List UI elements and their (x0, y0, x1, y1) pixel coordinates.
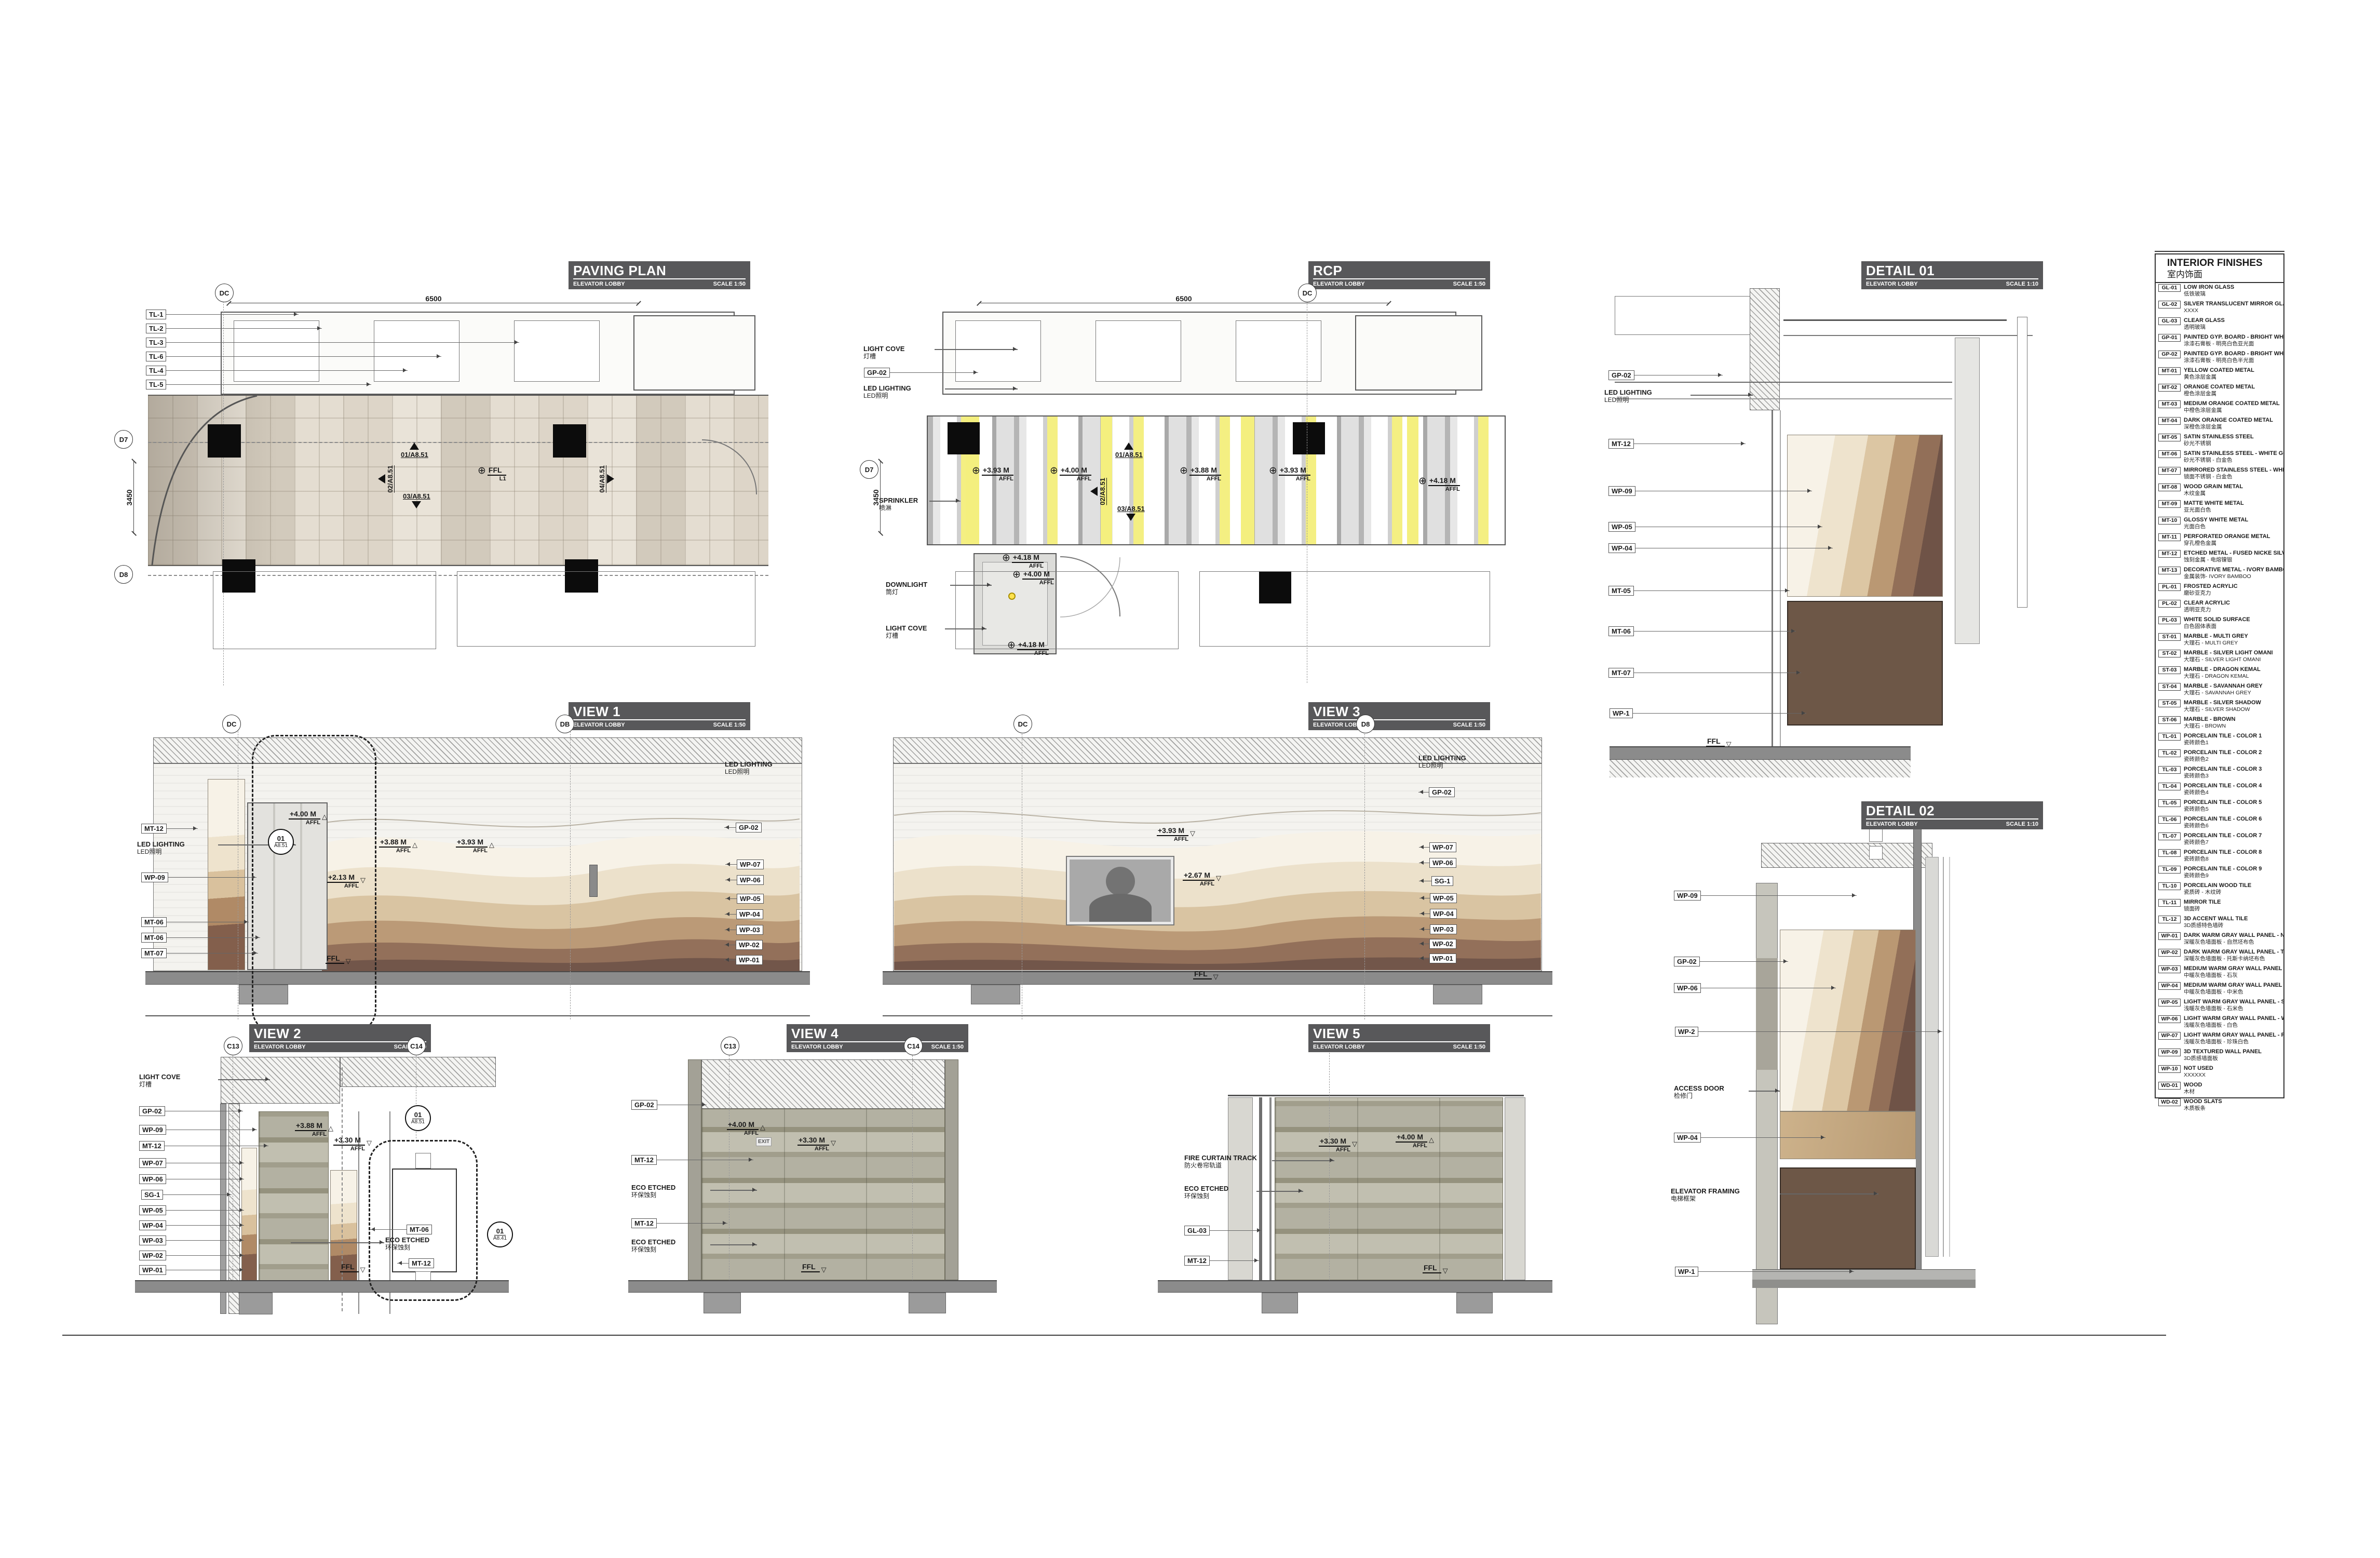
layered-wall-waves (894, 795, 1541, 970)
view5-drawing (1158, 1046, 1552, 1337)
finish-desc-cn: 瓷砖颜色7 (2184, 839, 2262, 846)
finish-desc-cn: 瓷砖颜色5 (2184, 806, 2262, 813)
legend-row: TL-11 MIRROR TILE 镜面砖 (2156, 898, 2283, 915)
finish-desc-en: CLEAR GLASS (2184, 317, 2225, 324)
finish-code: WD-01 (2158, 1082, 2181, 1090)
finish-desc-en: NOT USED (2184, 1065, 2213, 1072)
finish-desc-en: WHITE SOLID SURFACE (2184, 616, 2250, 623)
finish-desc-cn: 低铁玻璃 (2184, 291, 2234, 298)
finish-desc-en: MARBLE - BROWN (2184, 716, 2236, 723)
finish-desc: ETCHED METAL - FUSED NICKE SILVER SATIN … (2184, 549, 2281, 563)
finish-code: WP-05 (2158, 999, 2181, 1006)
finish-desc: YELLOW COATED METAL 黄色涂层金属 (2184, 367, 2254, 381)
finish-code: GL-01 (2158, 284, 2181, 292)
finish-code: MT-13 (2158, 567, 2181, 574)
return-panel (1925, 857, 1939, 1257)
finish-desc-cn: 透明亚克力 (2184, 607, 2230, 613)
panel-title: PAVING PLAN (573, 263, 746, 279)
finish-layer-wedge (241, 1148, 257, 1288)
finish-desc: MEDIUM WARM GRAY WALL PANEL - MID BEIGE … (2184, 982, 2281, 996)
legend-rows: GL-01 LOW IRON GLASS 低铁玻璃 GL-02 SILVER T… (2156, 283, 2283, 1114)
finish-code: MT-08 (2158, 483, 2181, 491)
finish-desc: MARBLE - DRAGON KEMAL 大理石 - DRAGON KEMAL (2184, 666, 2261, 680)
finish-desc-en: MATTE WHITE METAL (2184, 500, 2244, 507)
finish-desc: PORCELAIN TILE - COLOR 7 瓷砖颜色7 (2184, 832, 2262, 846)
glass-mullion (1259, 1097, 1262, 1280)
finish-desc: DARK WARM GRAY WALL PANEL - NATURAL GRIE… (2184, 932, 2281, 946)
slab-support (704, 1293, 741, 1313)
ceiling-hatch (153, 737, 802, 763)
slab-support (909, 1293, 946, 1313)
finish-code: GP-02 (2158, 351, 2181, 358)
finish-desc-cn: 涂漆石膏板 - 明亮白色半光面 (2184, 357, 2281, 364)
finish-desc: 3D TEXTURED WALL PANEL 3D质感墙面板 (2184, 1048, 2262, 1062)
finish-code: WD-02 (2158, 1098, 2181, 1106)
finish-desc-en: DARK WARM GRAY WALL PANEL - NATURAL GRIE… (2184, 932, 2281, 939)
portrait-artwork (1067, 857, 1173, 924)
finish-desc: WOOD GRAIN METAL 木纹金属 (2184, 483, 2243, 497)
access-door-dark-seg (1756, 958, 1778, 1070)
finish-code: TL-11 (2158, 899, 2181, 907)
finish-desc: MEDIUM WARM GRAY WALL PANEL - STONE GRAY… (2184, 965, 2281, 979)
striped-ceiling (927, 415, 1506, 545)
finish-desc-en: PORCELAIN TILE - COLOR 6 (2184, 815, 2262, 823)
panel-titlebar: DETAIL 01 ELEVATOR LOBBY SCALE 1:10 (1861, 261, 2043, 289)
lower-rooms (1199, 571, 1490, 647)
finish-desc: WOOD SLATS 木质板条 (2184, 1098, 2222, 1112)
legend-row: MT-04 DARK ORANGE COATED METAL 深橙色涂层金属 (2156, 416, 2283, 433)
panel-scale: SCALE 1:10 (2006, 821, 2038, 827)
legend-row: GP-02 PAINTED GYP. BOARD - BRIGHT WHITE … (2156, 350, 2283, 366)
legend-row: PL-03 WHITE SOLID SURFACE 白色固体表面 (2156, 615, 2283, 632)
finish-layer-wedge (330, 1170, 357, 1282)
side-room (1355, 315, 1482, 391)
portrait-shoulders (1089, 894, 1152, 922)
finish-desc-en: ORANGE COATED METAL (2184, 383, 2255, 391)
finish-code: TL-01 (2158, 733, 2181, 741)
ceiling-hatch (221, 1057, 340, 1104)
far-wall (2017, 317, 2027, 608)
finish-layer-wedge (208, 779, 245, 970)
layered-wall-waves (322, 808, 800, 971)
finish-desc-en: PORCELAIN WOOD TILE (2184, 882, 2251, 889)
legend-row: TL-02 PORCELAIN TILE - COLOR 2 瓷砖颜色2 (2156, 748, 2283, 765)
legend-row: WP-01 DARK WARM GRAY WALL PANEL - NATURA… (2156, 931, 2283, 948)
finish-desc: PERFORATED ORANGE METAL 穿孔橙色金属 (2184, 533, 2270, 547)
panel-subtitle-row: ELEVATOR LOBBY SCALE 1:50 (1313, 279, 1485, 287)
access-door-column (1756, 883, 1778, 1324)
legend-row: TL-03 PORCELAIN TILE - COLOR 3 瓷砖颜色3 (2156, 765, 2283, 782)
finish-desc: PORCELAIN TILE - COLOR 4 瓷砖颜色4 (2184, 782, 2262, 796)
finish-desc-en: DECORATIVE METAL - IVORY BAMBOO (2184, 566, 2281, 573)
paving-plan-drawing (140, 288, 779, 704)
finish-desc-en: PORCELAIN TILE - COLOR 5 (2184, 799, 2262, 806)
view3-drawing (883, 724, 1552, 1031)
finish-desc: LOW IRON GLASS 低铁玻璃 (2184, 284, 2234, 298)
view1-drawing (145, 724, 810, 1031)
finish-desc-en: CLEAR ACRYLIC (2184, 599, 2230, 607)
legend-row: TL-10 PORCELAIN WOOD TILE 瓷质砖 - 木纹砖 (2156, 881, 2283, 898)
finish-desc-cn: 镜面不锈钢 - 白金色 (2184, 474, 2281, 480)
finish-code: TL-05 (2158, 799, 2181, 807)
panel-subtitle: ELEVATOR LOBBY (573, 281, 625, 287)
finish-desc-cn: 光面白色 (2184, 523, 2248, 530)
legend-row: MT-05 SATIN STAINLESS STEEL 砂光不锈钢 (2156, 433, 2283, 449)
side-room (633, 315, 755, 391)
grid-centerline (729, 1047, 729, 1280)
legend-row: ST-04 MARBLE - SAVANNAH GREY 大理石 - SAVAN… (2156, 682, 2283, 699)
yellow-ceiling-stripe (1101, 417, 1112, 544)
finish-desc-cn: 橙色涂层金属 (2184, 391, 2255, 397)
finish-desc: PORCELAIN TILE - COLOR 3 瓷砖颜色3 (2184, 765, 2262, 780)
finish-desc: WHITE SOLID SURFACE 白色固体表面 (2184, 616, 2250, 630)
soffit-line (1615, 382, 1952, 383)
finish-desc-en: SILVER TRANSLUCENT MIRROR GLASS (2184, 300, 2281, 307)
finish-desc-en: SATIN STAINLESS STEEL (2184, 433, 2254, 440)
finish-code: PL-02 (2158, 600, 2181, 608)
finish-desc-en: WOOD SLATS (2184, 1098, 2222, 1105)
dimension: 3450 (126, 461, 134, 534)
interior-finishes-legend: INTERIOR FINISHES 室内饰面 GL-01 LOW IRON GL… (2155, 253, 2284, 1098)
finish-code: MT-01 (2158, 367, 2181, 375)
finish-code: MT-07 (2158, 467, 2181, 475)
grid-bubble: D7 (114, 430, 133, 449)
legend-row: ST-06 MARBLE - BROWN 大理石 - BROWN (2156, 715, 2283, 732)
finish-desc-cn: 浅暖灰色墙面板 - 石米色 (2184, 1005, 2281, 1012)
legend-row: WP-02 DARK WARM GRAY WALL PANEL - TOSCAN… (2156, 948, 2283, 964)
dimension-line (133, 461, 134, 534)
finish-desc-cn: 瓷砖颜色1 (2184, 740, 2262, 746)
finish-desc-cn: 大理石 - SILVER SHADOW (2184, 706, 2261, 713)
finish-desc-en: MEDIUM WARM GRAY WALL PANEL - MID BEIGE (2184, 982, 2281, 989)
panel-scale: SCALE 1:50 (713, 281, 746, 287)
finish-desc-cn: 3D质感特色墙砖 (2184, 922, 2248, 929)
finish-desc-cn: 瓷质砖 - 木纹砖 (2184, 889, 2251, 896)
baseline (145, 1015, 810, 1016)
dimension-value: 3450 (126, 489, 133, 505)
finish-desc: SATIN STAINLESS STEEL - WHITE GOLD 砂光不锈钢… (2184, 450, 2281, 464)
finish-code: TL-12 (2158, 916, 2181, 923)
finish-code: MT-12 (2158, 550, 2181, 558)
finish-desc: DARK WARM GRAY WALL PANEL - TOSCANA GRIE… (2184, 948, 2281, 962)
finish-code: WP-09 (2158, 1049, 2181, 1056)
legend-row: TL-01 PORCELAIN TILE - COLOR 1 瓷砖颜色1 (2156, 732, 2283, 748)
legend-row: TL-08 PORCELAIN TILE - COLOR 8 瓷砖颜色8 (2156, 848, 2283, 865)
drawing-sheet: INTERIOR FINISHES 室内饰面 GL-01 LOW IRON GL… (0, 0, 2380, 1558)
legend-row: ST-01 MARBLE - MULTI GREY 大理石 - MULTI GR… (2156, 632, 2283, 649)
lower-corridor (955, 571, 1179, 649)
finish-code: TL-10 (2158, 882, 2181, 890)
detail-scope-bubble (369, 1140, 478, 1301)
glass-mullion (1269, 1097, 1272, 1280)
yellow-ceiling-stripe (1407, 417, 1418, 544)
finish-desc-en: SATIN STAINLESS STEEL - WHITE GOLD (2184, 450, 2281, 457)
floor-slab (1610, 746, 1911, 760)
legend-row: GP-01 PAINTED GYP. BOARD - BRIGHT WHITE … (2156, 333, 2283, 350)
finish-desc-en: LIGHT WARM GRAY WALL PANEL - STONE BEIGE (2184, 998, 2281, 1005)
legend-row: PL-01 FROSTED ACRYLIC 磨砂亚克力 (2156, 582, 2283, 599)
finish-desc-cn: 瓷砖颜色9 (2184, 872, 2262, 879)
finish-desc: MARBLE - BROWN 大理石 - BROWN (2184, 716, 2236, 730)
finish-desc-cn: 浅暖灰色墙面板 - 珍珠白色 (2184, 1039, 2281, 1045)
detail02-drawing (1578, 828, 2077, 1327)
finish-desc-en: LIGHT WARM GRAY WALL PANEL - WHITE (2184, 1015, 2281, 1022)
elevator-shaft-cell (1236, 320, 1321, 382)
legend-row: MT-08 WOOD GRAIN METAL 木纹金属 (2156, 482, 2283, 499)
finish-code: TL-06 (2158, 816, 2181, 824)
legend-row: TL-04 PORCELAIN TILE - COLOR 4 瓷砖颜色4 (2156, 782, 2283, 798)
finish-desc-en: DARK ORANGE COATED METAL (2184, 417, 2273, 424)
ceiling-hatch (893, 737, 1542, 763)
finish-code: GL-03 (2158, 317, 2181, 325)
panel-title: VIEW 1 (573, 704, 746, 720)
finish-code: TL-02 (2158, 749, 2181, 757)
grid-centerline (233, 1047, 233, 1280)
baseline (883, 1015, 1552, 1016)
grid-centerline (1329, 1047, 1330, 1280)
shaft-wall-stud (945, 1059, 958, 1280)
legend-row: ST-03 MARBLE - DRAGON KEMAL 大理石 - DRAGON… (2156, 665, 2283, 682)
slab-support (971, 985, 1020, 1004)
finish-desc-en: 3D ACCENT WALL TILE (2184, 915, 2248, 922)
finish-desc-en: YELLOW COATED METAL (2184, 367, 2254, 374)
panel-subtitle-row: ELEVATOR LOBBY SCALE 1:10 (1866, 279, 2038, 287)
finish-code: PL-03 (2158, 616, 2181, 624)
finish-desc-en: GLOSSY WHITE METAL (2184, 516, 2248, 523)
slab-support (1433, 985, 1482, 1004)
finish-desc: PORCELAIN TILE - COLOR 2 瓷砖颜色2 (2184, 749, 2262, 763)
finish-desc-cn: 大理石 - SILVER LIGHT OMANI (2184, 656, 2273, 663)
finish-code: TL-09 (2158, 866, 2181, 874)
finish-desc-cn: 涂漆石膏板 - 明亮白色亚光面 (2184, 341, 2281, 347)
finish-desc: PORCELAIN TILE - COLOR 1 瓷砖颜色1 (2184, 732, 2262, 746)
legend-row: GL-02 SILVER TRANSLUCENT MIRROR GLASS XX… (2156, 300, 2283, 316)
finish-desc-cn: 木材 (2184, 1089, 2202, 1095)
scope-dashline (342, 1067, 343, 1311)
floor-slab (883, 971, 1552, 985)
finish-desc-en: 3D TEXTURED WALL PANEL (2184, 1048, 2262, 1055)
finish-desc: LIGHT WARM GRAY WALL PANEL - STONE BEIGE… (2184, 998, 2281, 1012)
finish-desc-en: PORCELAIN TILE - COLOR 4 (2184, 782, 2262, 789)
finish-desc-cn: 蚀刻金属 - 电熔镍银 (2184, 557, 2281, 563)
finish-desc-en: LOW IRON GLASS (2184, 284, 2234, 291)
rcp-drawing (877, 288, 1516, 704)
legend-row: MT-13 DECORATIVE METAL - IVORY BAMBOO 金属… (2156, 566, 2283, 582)
finish-desc-cn: 黄色涂层金属 (2184, 374, 2254, 381)
slab-support (239, 1293, 273, 1314)
finish-code: ST-06 (2158, 716, 2181, 724)
finish-code: MT-04 (2158, 417, 2181, 425)
legend-row: TL-05 PORCELAIN TILE - COLOR 5 瓷砖颜色5 (2156, 798, 2283, 815)
panel-subtitle-row: ELEVATOR LOBBY SCALE 1:10 (1866, 820, 2038, 827)
grid-bubble-label: D7 (119, 436, 128, 444)
legend-row: MT-09 MATTE WHITE METAL 亚光面白色 (2156, 499, 2283, 516)
finish-code: ST-02 (2158, 650, 2181, 657)
finish-desc: SATIN STAINLESS STEEL 砂光不锈钢 (2184, 433, 2254, 447)
return-panel (1955, 338, 1980, 644)
elevator-shaft-cell (374, 320, 459, 382)
finish-desc-cn: 瓷砖颜色6 (2184, 823, 2262, 829)
panel-scale: SCALE 1:50 (1453, 281, 1485, 287)
elevator-door-block (948, 422, 980, 454)
legend-row: TL-07 PORCELAIN TILE - COLOR 7 瓷砖颜色7 (2156, 831, 2283, 848)
finish-code: ST-01 (2158, 633, 2181, 641)
ceiling-hatch (1761, 843, 1932, 868)
finish-desc-cn: 砂光不锈钢 - 白金色 (2184, 457, 2281, 464)
finish-desc: PORCELAIN TILE - COLOR 5 瓷砖颜色5 (2184, 799, 2262, 813)
legend-row: WD-02 WOOD SLATS 木质板条 (2156, 1097, 2283, 1114)
finish-desc-en: MEDIUM ORANGE COATED METAL (2184, 400, 2280, 407)
finish-desc-en: PORCELAIN TILE - COLOR 1 (2184, 732, 2262, 740)
elevator-shaft-cell (234, 320, 319, 382)
finish-code: MT-03 (2158, 400, 2181, 408)
finish-desc-cn: 木质板条 (2184, 1105, 2222, 1112)
stud-line (1772, 410, 1773, 763)
finish-desc: PORCELAIN TILE - COLOR 6 瓷砖颜色6 (2184, 815, 2262, 829)
finish-desc-en: MARBLE - DRAGON KEMAL (2184, 666, 2261, 673)
finish-desc-cn: 砂光不锈钢 (2184, 440, 2254, 447)
grid-bubble: D7 (860, 460, 878, 479)
finish-desc: MARBLE - SILVER SHADOW 大理石 - SILVER SHAD… (2184, 699, 2261, 713)
elevator-door-block (208, 424, 241, 458)
elevator-shaft-cell (955, 320, 1041, 382)
finish-desc: LIGHT WARM GRAY WALL PANEL - PEARL WHITE… (2184, 1031, 2281, 1045)
finish-desc: CLEAR GLASS 透明玻璃 (2184, 317, 2225, 331)
finish-desc-cn: 大理石 - SAVANNAH GREY (2184, 690, 2263, 696)
finish-desc-en: PORCELAIN TILE - COLOR 7 (2184, 832, 2262, 839)
finish-desc: 3D ACCENT WALL TILE 3D质感特色墙砖 (2184, 915, 2248, 929)
door-swing-arc (701, 439, 758, 496)
view4-drawing (628, 1046, 997, 1337)
ceiling-line (1228, 1095, 1524, 1096)
finish-desc-cn: 透明玻璃 (2184, 324, 2225, 331)
finish-desc: PAINTED GYP. BOARD - BRIGHT WHITE SEMI G… (2184, 350, 2281, 364)
finish-desc-cn: 深橙色涂层金属 (2184, 424, 2273, 431)
call-panel (589, 865, 598, 897)
finish-desc-cn: XXXXXX (2184, 1072, 2213, 1079)
finish-desc-cn: 金属装饰- IVORY BAMBOO (2184, 573, 2281, 580)
slab-hatch (1610, 760, 1911, 777)
legend-row: PL-02 CLEAR ACRYLIC 透明亚克力 (2156, 599, 2283, 615)
legend-row: MT-01 YELLOW COATED METAL 黄色涂层金属 (2156, 366, 2283, 383)
floor-slab (628, 1280, 997, 1293)
finish-desc: PORCELAIN WOOD TILE 瓷质砖 - 木纹砖 (2184, 882, 2251, 896)
panel-line (1949, 857, 1950, 1257)
base-strip (1752, 1269, 1976, 1280)
finish-code: MT-02 (2158, 384, 2181, 392)
finish-desc: MIRRORED STAINLESS STEEL - WHITE GOLD 镜面… (2184, 466, 2281, 480)
finish-code: WP-07 (2158, 1032, 2181, 1040)
panel-subtitle: ELEVATOR LOBBY (1866, 821, 1918, 827)
portrait-head (1106, 867, 1135, 896)
etched-metal-wall (1275, 1097, 1503, 1280)
finish-desc-en: MARBLE - SILVER LIGHT OMANI (2184, 649, 2273, 656)
lower-corridor (213, 571, 436, 649)
panel-title: DETAIL 01 (1866, 263, 2038, 279)
grid-centerline (416, 1047, 416, 1138)
slab-support (1262, 1293, 1298, 1313)
grid-centerline (570, 729, 571, 1019)
finish-desc-cn: 瓷砖颜色3 (2184, 773, 2262, 780)
grid-centerline (912, 1047, 913, 1280)
finish-code: ST-04 (2158, 683, 2181, 691)
finish-desc-en: MARBLE - SILVER SHADOW (2184, 699, 2261, 706)
legend-row: WP-05 LIGHT WARM GRAY WALL PANEL - STONE… (2156, 998, 2283, 1014)
finish-desc-en: PORCELAIN TILE - COLOR 8 (2184, 849, 2262, 856)
elevator-door-block (553, 424, 586, 458)
finish-desc: DARK ORANGE COATED METAL 深橙色涂层金属 (2184, 417, 2273, 431)
finish-code: GL-02 (2158, 301, 2181, 308)
slab-support (1456, 1293, 1493, 1313)
bracket (1869, 846, 1883, 859)
finish-code: MT-06 (2158, 450, 2181, 458)
finish-desc: MIRROR TILE 镜面砖 (2184, 898, 2221, 912)
finish-desc-en: MIRRORED STAINLESS STEEL - WHITE GOLD (2184, 466, 2281, 474)
panel-scale: SCALE 1:10 (2006, 281, 2038, 287)
finish-code: TL-08 (2158, 849, 2181, 857)
panel-title: DETAIL 02 (1866, 803, 2038, 820)
legend-row: TL-09 PORCELAIN TILE - COLOR 9 瓷砖颜色9 (2156, 865, 2283, 881)
panel-gap (1780, 1159, 1916, 1167)
finish-desc-cn: 3D质感墙面板 (2184, 1055, 2262, 1062)
finish-desc: PORCELAIN TILE - COLOR 9 瓷砖颜色9 (2184, 865, 2262, 879)
finish-desc-cn: 大理石 - MULTI GREY (2184, 640, 2248, 647)
tan-panel-band (1780, 1111, 1916, 1159)
finish-desc: MARBLE - SILVER LIGHT OMANI 大理石 - SILVER… (2184, 649, 2273, 663)
finish-desc-cn: 瓷砖颜色8 (2184, 856, 2262, 863)
finish-code: PL-01 (2158, 583, 2181, 591)
finish-desc-cn: 中暖灰色墙面板 - 中米色 (2184, 989, 2281, 996)
floor-slab (145, 971, 810, 985)
finish-desc: FROSTED ACRYLIC 磨砂亚克力 (2184, 583, 2238, 597)
finish-desc-en: PAINTED GYP. BOARD - BRIGHT WHITE FLAT (2184, 333, 2281, 341)
elevator-shaft-cell (1096, 320, 1181, 382)
finish-desc-cn: 大理石 - BROWN (2184, 723, 2236, 730)
finish-desc: WOOD 木材 (2184, 1081, 2202, 1095)
legend-row: WD-01 WOOD 木材 (2156, 1081, 2283, 1097)
finish-code: WP-04 (2158, 982, 2181, 990)
stud-line (1780, 410, 1781, 763)
finish-desc: DECORATIVE METAL - IVORY BAMBOO 金属装饰- IV… (2184, 566, 2281, 580)
soffit-line (1615, 398, 1952, 399)
finish-code: MT-09 (2158, 500, 2181, 508)
legend-row: WP-06 LIGHT WARM GRAY WALL PANEL - WHITE… (2156, 1014, 2283, 1031)
finish-desc-cn: 镜面砖 (2184, 906, 2221, 912)
wall-return (1505, 1097, 1525, 1280)
finish-desc-cn: 瓷砖颜色2 (2184, 756, 2262, 763)
finish-desc-en: WOOD GRAIN METAL (2184, 483, 2243, 490)
shaft-wall-stud (688, 1059, 701, 1280)
legend-row: WP-09 3D TEXTURED WALL PANEL 3D质感墙面板 (2156, 1047, 2283, 1064)
elevator-shaft-cell (514, 320, 600, 382)
finish-desc: ORANGE COATED METAL 橙色涂层金属 (2184, 383, 2255, 397)
wall-return (1228, 1097, 1253, 1280)
finish-code: TL-04 (2158, 783, 2181, 790)
finish-desc-cn: 中暖灰色墙面板 - 石灰 (2184, 972, 2281, 979)
grid-bubble-label: D8 (119, 571, 128, 579)
finish-desc-en: MARBLE - MULTI GREY (2184, 633, 2248, 640)
legend-row: WP-07 LIGHT WARM GRAY WALL PANEL - PEARL… (2156, 1031, 2283, 1047)
view2-drawing (135, 1046, 514, 1337)
ceiling-beam (1615, 296, 1760, 335)
finish-code: WP-02 (2158, 949, 2181, 957)
legend-row: WP-04 MEDIUM WARM GRAY WALL PANEL - MID … (2156, 981, 2283, 998)
finish-desc: SILVER TRANSLUCENT MIRROR GLASS XXXX (2184, 300, 2281, 314)
panel-line (1943, 857, 1944, 1257)
base-strip (1752, 1280, 1976, 1288)
finish-desc-en: MEDIUM WARM GRAY WALL PANEL - STONE GRAY (2184, 965, 2281, 972)
etched-metal-wall (701, 1109, 945, 1280)
